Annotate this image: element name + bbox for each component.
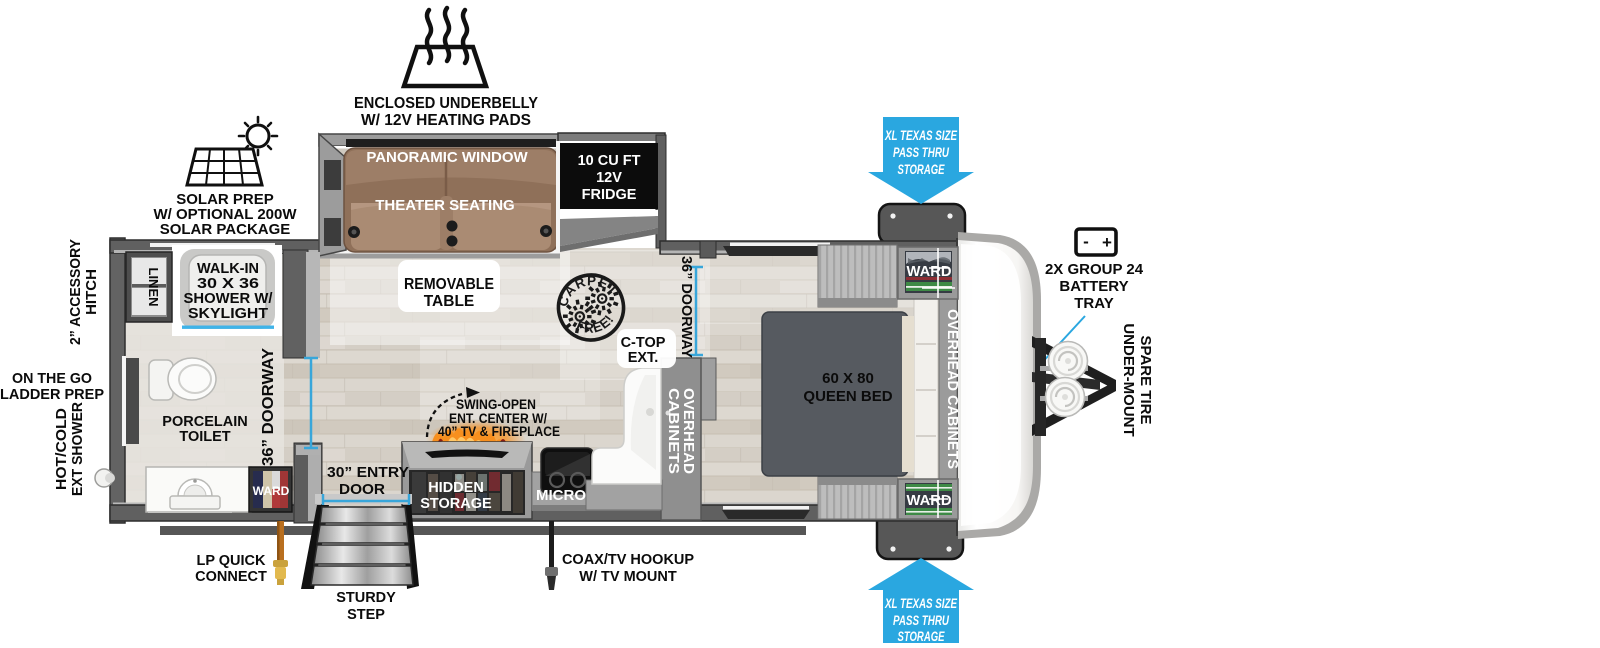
svg-text:30” ENTRY: 30” ENTRY [327,464,409,481]
svg-text:HITCH: HITCH [83,269,100,315]
svg-text:SOLAR PACKAGE: SOLAR PACKAGE [160,221,291,238]
svg-text:HOT/COLD: HOT/COLD [53,408,70,490]
svg-text:STURDY: STURDY [336,590,396,606]
svg-text:40” TV & FIREPLACE: 40” TV & FIREPLACE [438,424,560,439]
svg-text:2” ACCESSORY: 2” ACCESSORY [67,239,84,345]
svg-text:EXT.: EXT. [628,350,659,366]
svg-text:2X GROUP 24: 2X GROUP 24 [1045,261,1144,278]
svg-text:PORCELAIN: PORCELAIN [162,414,247,430]
svg-text:+: + [1102,233,1112,252]
svg-text:W/ 12V HEATING PADS: W/ 12V HEATING PADS [361,112,531,129]
svg-text:CABINETS: CABINETS [665,388,682,474]
svg-text:10 CU FT: 10 CU FT [578,153,641,169]
svg-text:SHOWER W/: SHOWER W/ [184,291,273,307]
svg-text:UNDER-MOUNT: UNDER-MOUNT [1120,323,1137,436]
svg-text:TABLE: TABLE [424,293,475,310]
svg-text:MICRO: MICRO [536,487,586,504]
svg-text:XL TEXAS SIZE: XL TEXAS SIZE [884,596,957,611]
svg-text:-: - [1083,232,1089,251]
svg-text:WARD: WARD [907,263,952,280]
svg-text:CONNECT: CONNECT [195,569,267,585]
svg-text:SWING-OPEN: SWING-OPEN [456,397,536,412]
svg-text:ENCLOSED UNDERBELLY: ENCLOSED UNDERBELLY [354,95,538,112]
svg-text:HIDDEN: HIDDEN [428,480,484,496]
svg-text:REMOVABLE: REMOVABLE [404,276,494,293]
svg-text:TOILET: TOILET [179,429,230,445]
svg-text:FRIDGE: FRIDGE [582,187,637,203]
svg-text:QUEEN BED: QUEEN BED [803,388,892,405]
svg-text:COAX/TV HOOKUP: COAX/TV HOOKUP [562,552,694,568]
svg-text:STEP: STEP [347,607,385,623]
svg-text:TRAY: TRAY [1074,295,1113,312]
svg-text:WARD: WARD [253,484,290,498]
svg-text:SPARE TIRE: SPARE TIRE [1137,336,1154,425]
svg-text:LADDER PREP: LADDER PREP [0,386,104,403]
svg-text:STORAGE: STORAGE [898,162,946,177]
svg-text:WALK-IN: WALK-IN [197,261,259,277]
svg-text:36” DOORWAY: 36” DOORWAY [678,256,694,358]
svg-text:W/ TV MOUNT: W/ TV MOUNT [579,569,677,585]
svg-text:PANORAMIC WINDOW: PANORAMIC WINDOW [366,149,528,166]
svg-text:DOOR: DOOR [339,481,385,498]
svg-text:BATTERY: BATTERY [1059,278,1128,295]
svg-text:30 X 36: 30 X 36 [197,276,259,292]
svg-text:ON THE GO: ON THE GO [12,370,92,387]
svg-text:PASS THRU: PASS THRU [893,613,950,628]
svg-text:OVERHEAD CABINETS: OVERHEAD CABINETS [944,309,960,469]
svg-text:C-TOP: C-TOP [621,335,666,351]
svg-text:60 X 80: 60 X 80 [822,370,874,387]
svg-text:SKYLIGHT: SKYLIGHT [188,306,268,322]
svg-text:LINEN: LINEN [146,268,161,307]
svg-text:XL TEXAS SIZE: XL TEXAS SIZE [884,128,957,143]
svg-text:EXT SHOWER: EXT SHOWER [69,402,86,496]
svg-text:WARD: WARD [907,492,952,509]
svg-text:STORAGE: STORAGE [898,629,946,643]
svg-text:PASS THRU: PASS THRU [893,145,950,160]
svg-text:STORAGE: STORAGE [420,496,492,512]
svg-text:THEATER SEATING: THEATER SEATING [375,197,514,214]
svg-text:LP QUICK: LP QUICK [196,553,266,569]
svg-text:12V: 12V [596,170,622,186]
svg-text:36” DOORWAY: 36” DOORWAY [260,348,277,466]
